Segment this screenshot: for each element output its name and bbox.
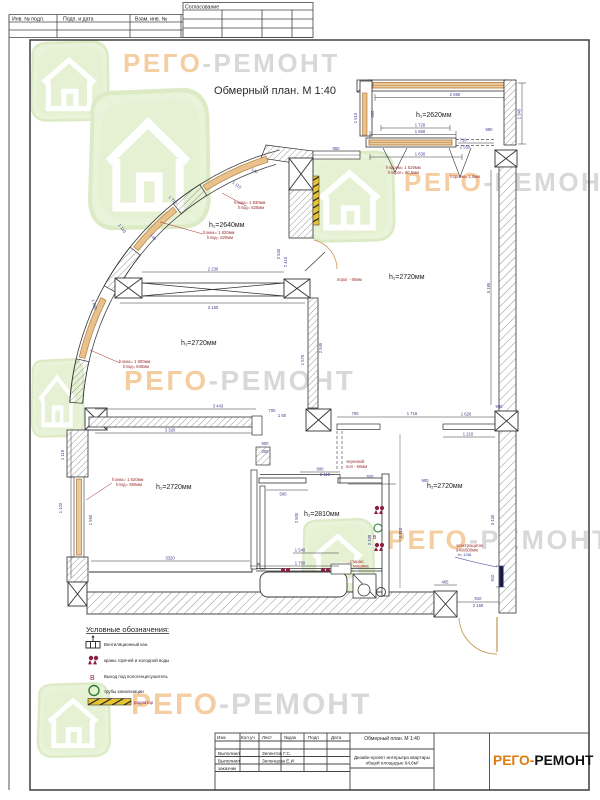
svg-text:1 720: 1 720 [415, 123, 426, 128]
svg-text:2 550: 2 550 [460, 145, 471, 150]
svg-text:общей площадью 64,6м²: общей площадью 64,6м² [366, 760, 419, 766]
svg-text:Зелентов Г.С.: Зелентов Г.С. [262, 751, 291, 756]
svg-text:910: 910 [490, 574, 495, 582]
svg-text:2 310: 2 310 [398, 527, 403, 538]
svg-text:h под= 840мм: h под= 840мм [123, 364, 149, 369]
svg-text:машина: машина [353, 564, 369, 569]
svg-text:920: 920 [367, 474, 375, 479]
svg-text:РЕГО-РЕМОНТ: РЕГО-РЕМОНТ [493, 753, 594, 768]
svg-text:порог - 90мм: порог - 90мм [337, 277, 362, 282]
svg-text:РЕГО-РЕМОНТ: РЕГО-РЕМОНТ [124, 365, 355, 396]
svg-text:h₁=2720мм: h₁=2720мм [427, 483, 463, 490]
svg-text:Согласование: Согласование [185, 5, 219, 11]
svg-text:Взам. инв. №: Взам. инв. № [135, 17, 168, 23]
svg-text:1 660: 1 660 [88, 514, 93, 525]
svg-text:1 575: 1 575 [300, 354, 305, 365]
svg-text:2 160: 2 160 [473, 603, 484, 608]
svg-text:1 550: 1 550 [415, 129, 426, 134]
svg-text:2 540: 2 540 [276, 248, 281, 259]
svg-text:Обмерный план. М 1:40: Обмерный план. М 1:40 [364, 735, 420, 742]
svg-text:900: 900 [422, 478, 430, 483]
svg-text:h под= 825мм: h под= 825мм [238, 205, 264, 210]
svg-text:РЕГО-РЕМОНТ: РЕГО-РЕМОНТ [387, 525, 600, 555]
svg-text:h под= 950мм: h под= 950мм [116, 482, 142, 487]
svg-text:2 545: 2 545 [318, 342, 323, 353]
svg-text:940х500мм: 940х500мм [456, 548, 478, 553]
svg-text:2 110: 2 110 [320, 472, 331, 477]
svg-text:300: 300 [262, 449, 270, 454]
svg-text:465: 465 [442, 580, 450, 585]
svg-text:800: 800 [317, 467, 325, 472]
svg-text:№док: №док [284, 735, 297, 740]
svg-text:1 102: 1 102 [58, 502, 63, 513]
svg-text:h= 12Ш: h= 12Ш [458, 553, 472, 557]
svg-text:h₁=2720мм: h₁=2720мм [181, 340, 217, 347]
svg-text:В: В [90, 675, 95, 682]
svg-text:2 339: 2 339 [367, 534, 372, 545]
svg-text:710: 710 [460, 138, 468, 143]
svg-text:1 210: 1 210 [463, 432, 474, 437]
svg-text:Зеленцова Е.И: Зеленцова Е.И [262, 759, 294, 764]
svg-text:910: 910 [475, 596, 483, 601]
svg-text:5 195: 5 195 [486, 282, 491, 293]
svg-text:h под= 820мм: h под= 820мм [207, 235, 233, 240]
svg-text:трубы канализации: трубы канализации [104, 689, 144, 694]
svg-text:990: 990 [486, 127, 494, 132]
svg-text:Подп. и дата: Подп. и дата [63, 17, 94, 23]
svg-text:h₁=2640мм: h₁=2640мм [209, 222, 245, 229]
svg-text:Выполнил: Выполнил [218, 751, 240, 756]
svg-text:2 500: 2 500 [294, 512, 299, 523]
svg-text:1 340: 1 340 [517, 108, 522, 119]
svg-text:950: 950 [333, 146, 341, 151]
svg-text:1 510: 1 510 [353, 112, 358, 123]
svg-text:3 443: 3 443 [213, 404, 224, 409]
svg-text:900: 900 [262, 441, 270, 446]
svg-text:Кол.уч: Кол.уч [241, 735, 255, 740]
svg-text:1 119: 1 119 [60, 449, 65, 460]
svg-text:1 540: 1 540 [295, 548, 306, 553]
svg-text:радиатор: радиатор [134, 700, 154, 705]
svg-text:Подп: Подп [308, 735, 319, 740]
svg-text:1 630: 1 630 [415, 152, 426, 157]
svg-text:РЕГО-РЕМОНТ: РЕГО-РЕМОНТ [123, 48, 340, 78]
svg-text:700: 700 [352, 411, 360, 416]
svg-text:Лист: Лист [262, 735, 273, 740]
svg-text:Дата: Дата [331, 735, 342, 740]
svg-text:3 180: 3 180 [208, 305, 219, 310]
svg-text:Обмерный план. М 1:40: Обмерный план. М 1:40 [214, 85, 336, 97]
svg-text:Вентиляционный кан.: Вентиляционный кан. [104, 642, 148, 647]
svg-text:1 715: 1 715 [407, 411, 418, 416]
svg-text:h₁=2620мм: h₁=2620мм [416, 112, 452, 119]
svg-text:РЕГО-РЕМОНТ: РЕГО-РЕМОНТ [131, 688, 371, 721]
svg-text:пол - 50мм: пол - 50мм [346, 464, 367, 469]
svg-text:1 620: 1 620 [461, 412, 472, 417]
svg-text:990: 990 [496, 404, 504, 409]
svg-text:700: 700 [269, 408, 277, 413]
svg-text:Условные обозначения:: Условные обозначения: [86, 625, 169, 634]
svg-text:3 430: 3 430 [490, 514, 495, 525]
svg-text:h₁=2720мм: h₁=2720мм [156, 484, 192, 491]
svg-text:краны горячей и холодной воды: краны горячей и холодной воды [104, 658, 169, 663]
svg-text:Выход под полотенцесушитель: Выход под полотенцесушитель [104, 674, 168, 679]
svg-text:1 760: 1 760 [295, 561, 306, 566]
svg-text:Инв. № подл.: Инв. № подл. [12, 17, 44, 23]
svg-text:2 660: 2 660 [450, 92, 461, 97]
svg-text:3 320: 3 320 [165, 428, 176, 433]
svg-text:Выполнил: Выполнил [218, 759, 240, 764]
svg-text:2 410: 2 410 [283, 256, 288, 267]
svg-text:3320: 3320 [165, 556, 175, 561]
svg-text:1 80: 1 80 [278, 413, 287, 418]
svg-text:h порог= 80,5мм: h порог= 80,5мм [388, 170, 419, 175]
svg-text:Изм: Изм [217, 735, 226, 740]
svg-text:500: 500 [280, 492, 288, 497]
svg-text:заказчик: заказчик [218, 766, 237, 771]
svg-text:2 230: 2 230 [208, 267, 219, 272]
svg-text:h проем= 2,0мм: h проем= 2,0мм [450, 174, 480, 179]
svg-text:850: 850 [370, 110, 375, 118]
svg-text:h₁=2720мм: h₁=2720мм [389, 274, 425, 281]
svg-text:Дизайн-проект интерьера кварти: Дизайн-проект интерьера квартиры [354, 754, 430, 760]
svg-text:h₁=2810мм: h₁=2810мм [304, 511, 340, 518]
